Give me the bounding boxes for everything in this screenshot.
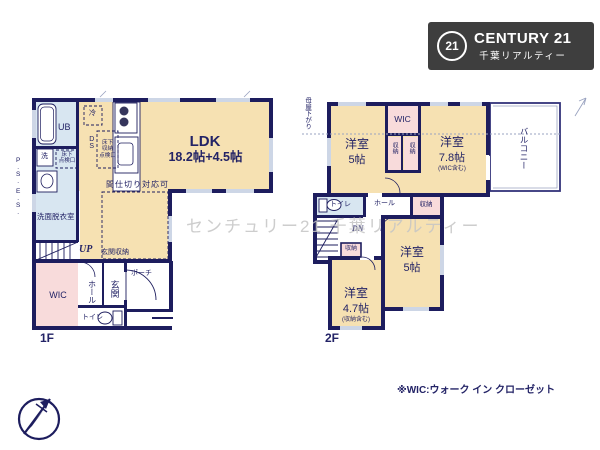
floorplan-page: LDK 18.2帖+4.5帖 間仕切り対応可 玄関収納 UP WIC ホール 玄… bbox=[0, 0, 600, 450]
window bbox=[338, 102, 366, 106]
window bbox=[340, 326, 362, 330]
room-label-ub: UB bbox=[58, 122, 71, 133]
window bbox=[186, 189, 212, 193]
room5a-size: 5帖 bbox=[337, 154, 377, 167]
room-label-wic1: WIC bbox=[42, 290, 74, 301]
balcony-label: バルコニー bbox=[519, 127, 529, 170]
window bbox=[403, 307, 429, 311]
window bbox=[430, 102, 448, 106]
room-label-ldk: LDK bbox=[175, 133, 235, 151]
room5b-size: 5帖 bbox=[392, 262, 432, 275]
duct-space-label: DS bbox=[87, 136, 95, 150]
pipe-space-label: P.S. bbox=[14, 157, 22, 185]
room-label-toilet1: トイレ bbox=[82, 314, 103, 322]
closet-b-label: 収納 bbox=[407, 142, 414, 154]
room5b-name: 洋室 bbox=[392, 245, 432, 259]
room47-note: (収納含む) bbox=[328, 317, 384, 324]
century21-badge-icon: 21 bbox=[437, 31, 467, 61]
window bbox=[226, 189, 254, 193]
room-label-entrance: 玄関 bbox=[109, 280, 120, 298]
roof-tick bbox=[100, 91, 250, 97]
eaves-note-label: 母屋下がり bbox=[303, 97, 311, 130]
window bbox=[269, 138, 273, 172]
toilet-tank bbox=[319, 199, 327, 212]
closet-c-label: 収納 bbox=[412, 201, 440, 209]
room-label-hall2: ホール bbox=[374, 200, 395, 208]
floor-hatch-label: 床下点検口 bbox=[57, 152, 77, 165]
room78-size: 7.8帖 bbox=[428, 152, 476, 165]
watermark: センチュリー21 千葉リアルティー bbox=[186, 212, 480, 237]
room47-size: 4.7帖 bbox=[332, 303, 380, 316]
fridge-label: 冷 bbox=[89, 110, 96, 118]
window bbox=[327, 138, 331, 166]
room78-name: 洋室 bbox=[428, 135, 476, 149]
electric-space-label: E.S. bbox=[14, 188, 22, 216]
century21-logo: 21 CENTURY 21 千葉リアルティー bbox=[428, 22, 594, 70]
window bbox=[148, 98, 180, 102]
floor1-label: 1F bbox=[40, 331, 54, 345]
window bbox=[460, 102, 482, 106]
window bbox=[32, 194, 36, 212]
entrance-storage-label: 玄関収納 bbox=[101, 249, 129, 257]
room-size-ldk: 18.2帖+4.5帖 bbox=[148, 150, 263, 165]
window bbox=[32, 110, 36, 138]
balcony-door bbox=[486, 156, 490, 180]
room-label-wic2: WIC bbox=[387, 114, 418, 124]
hall-door-arc bbox=[80, 262, 95, 277]
closet-d-label: 収納 bbox=[341, 246, 361, 253]
room5a-name: 洋室 bbox=[337, 137, 377, 151]
wic-footnote: ※WIC:ウォーク イン クローゼット bbox=[397, 381, 555, 396]
window bbox=[440, 245, 444, 275]
window bbox=[95, 98, 113, 102]
room-label-washroom: 洗面脱衣室 bbox=[37, 213, 75, 222]
closet-a-label: 収納 bbox=[390, 142, 397, 154]
room-label-porch: ポーチ bbox=[131, 270, 152, 278]
logo-subtitle-text: 千葉リアルティー bbox=[479, 48, 566, 62]
room-label-toilet2: トイレ bbox=[330, 201, 351, 209]
window bbox=[168, 216, 172, 242]
logo-brand-text: CENTURY 21 bbox=[474, 30, 572, 47]
window bbox=[216, 98, 250, 102]
north-compass-icon bbox=[19, 399, 59, 439]
room47-name: 洋室 bbox=[332, 286, 380, 300]
floor2-label: 2F bbox=[325, 331, 339, 345]
roof-arrow bbox=[575, 98, 586, 116]
floor-storage-hatch-label: 床下収納点検口 bbox=[99, 140, 116, 159]
washer-label: 洗 bbox=[41, 153, 48, 161]
toilet-tank bbox=[113, 311, 122, 325]
stairs-up-label: UP bbox=[79, 244, 92, 256]
partition-note: 間仕切り対応可 bbox=[106, 180, 169, 189]
room-label-hall1: ホール bbox=[87, 280, 96, 304]
room78-note: (WIC含む) bbox=[424, 166, 480, 173]
